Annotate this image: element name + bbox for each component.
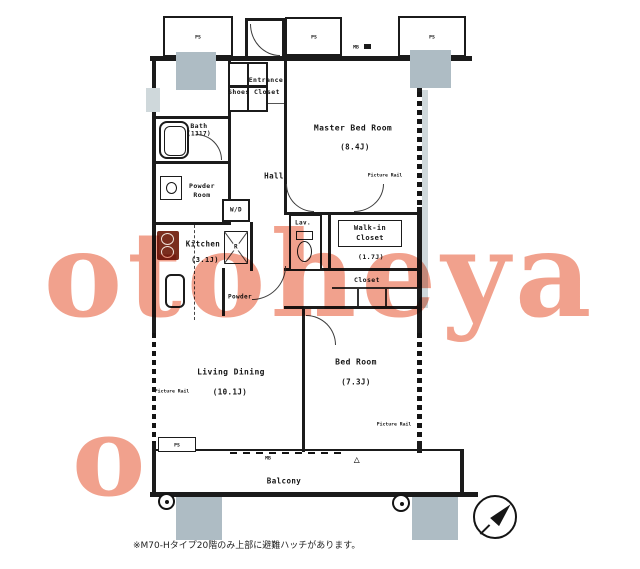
bath-size-label: (1317) [187,131,211,138]
closet-divider [385,289,387,306]
lav-label: Lav. [295,220,311,227]
wall [245,18,285,21]
pipe-shaft-label: PS [195,34,201,39]
alcove-label: Powder [228,294,252,301]
compass-icon [473,495,517,539]
refrigerator-label: R [233,244,239,251]
stove-icon [157,231,179,260]
door-arc [286,184,314,212]
wall-shading [422,90,428,308]
picture-rail-label: Picture Rail [377,421,411,426]
drain-vent-icon [392,494,410,512]
hall-label: Hall [264,172,284,181]
meter-box-mark [364,44,371,49]
shoes-closet-cabinet [228,62,268,112]
door-arc [250,24,280,56]
powder-room-label: Room [193,191,210,199]
drain-vent-icon [158,493,175,510]
wall [152,222,231,225]
toilet-icon [297,241,312,262]
master-bed-room-size: (8.4J) [340,143,370,152]
meter-box-label: MB [265,455,271,460]
wall [460,449,464,497]
bed-room-label: Bed Room [335,358,377,367]
picture-rail-label: Picture Rail [155,388,189,393]
column [410,50,451,88]
wall [328,215,331,271]
closet-shelf-line [332,287,417,289]
walk-in-closet-size: (1.7J) [358,253,384,261]
living-dining-size: (10.1J) [213,388,247,397]
kitchen-sink-icon [165,274,185,308]
entrance-label: Entrance [249,76,284,84]
bath-label: Bath [190,122,207,130]
column [176,52,216,90]
evacuation-hatch-icon: △ [354,455,360,466]
powder-room-label: Powder [189,182,215,190]
living-dining-label: Living Dining [197,368,265,377]
pipe-shaft-label: PS [311,34,317,39]
balcony-label: Balcony [267,477,301,486]
floorplan-screenshot: PS PS PS MB Entrance Shoes Closet Bath (… [0,0,640,569]
shoes-closet-label: Shoes Closet [228,88,280,96]
window-dashed [417,333,422,441]
wall [282,18,285,59]
wall [222,268,225,316]
pipe-shaft-label: PS [429,34,435,39]
kitchen-size-label: (3.1J) [191,256,219,264]
meter-box-label: MB [353,44,359,49]
toilet-icon [296,231,313,240]
door-arc [196,134,222,160]
bathtub-icon [159,121,189,159]
wall [302,309,305,453]
sliding-door-dashes [230,452,345,454]
door-arc [306,315,336,345]
door-arc [354,184,384,212]
pipe-shaft-label: PS [174,442,180,447]
plan-caption: ※M70-Hタイプ20階のみ上部に避難ハッチがあります。 [133,538,360,551]
closet-label: Closet [354,276,380,284]
sliding-door-line [156,449,464,451]
picture-rail-label: Picture Rail [368,172,402,177]
master-bed-room-label: Master Bed Room [314,124,392,133]
walk-in-closet-label: Closet [356,234,384,242]
closet-divider [357,289,359,306]
wall [152,116,231,119]
wall [152,449,156,497]
column [176,494,222,540]
watermark-fragment: o [72,402,145,512]
wall-shading [146,88,160,112]
window-dashed [417,92,422,207]
wall [250,222,253,271]
wall [245,18,248,59]
wall [152,161,231,164]
kitchen-label: Kitchen [186,240,220,249]
door-arc [252,266,286,300]
washbasin-icon [160,176,182,200]
washer-dryer-label: W/D [230,207,242,214]
balcony-outer-wall [150,492,478,497]
walk-in-closet-label: Walk-in [354,224,386,232]
bed-room-size: (7.3J) [341,378,371,387]
column [412,494,458,540]
